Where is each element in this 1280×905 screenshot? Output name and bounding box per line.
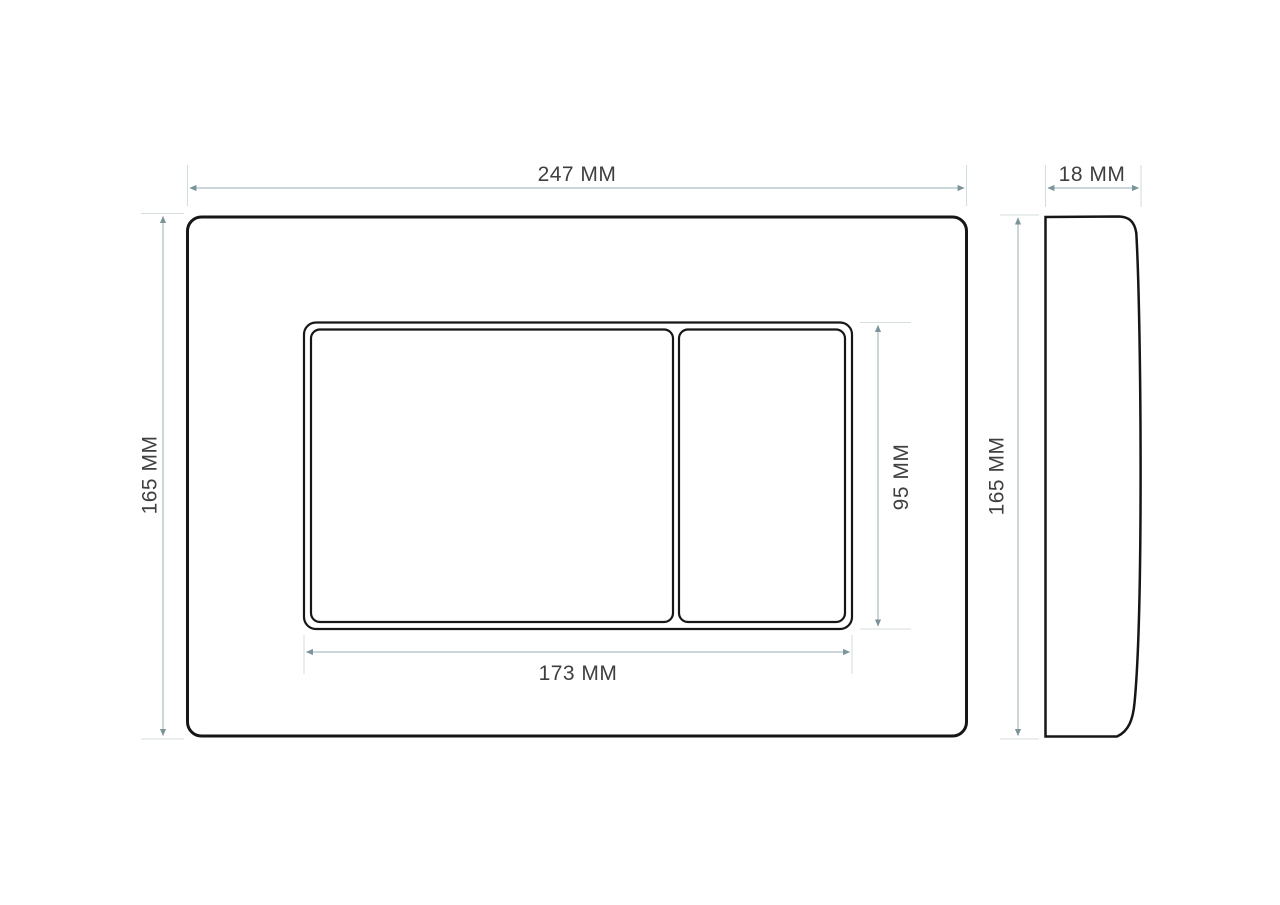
label-button-panel-width: 173 MM [539,662,618,685]
dim-overall-width: 247 MM [188,163,967,206]
large-flush-button [311,330,673,623]
label-button-panel-height: 95 MM [890,444,913,511]
side-view [1046,217,1141,737]
technical-drawing-canvas: 247 MM 165 MM 173 MM 95 MM 1 [0,0,1280,905]
label-overall-width: 247 MM [538,163,617,186]
label-depth: 18 MM [1059,163,1126,186]
label-overall-height-front: 165 MM [139,436,162,515]
dim-overall-height-side: 165 MM [986,215,1040,739]
small-flush-button [679,330,845,623]
label-overall-height-side: 165 MM [986,437,1009,516]
side-profile-outline [1046,217,1141,737]
dim-depth: 18 MM [1046,163,1142,207]
flush-plate-dimension-drawing: 247 MM 165 MM 173 MM 95 MM 1 [0,0,1280,905]
dim-overall-height-front: 165 MM [139,214,185,740]
